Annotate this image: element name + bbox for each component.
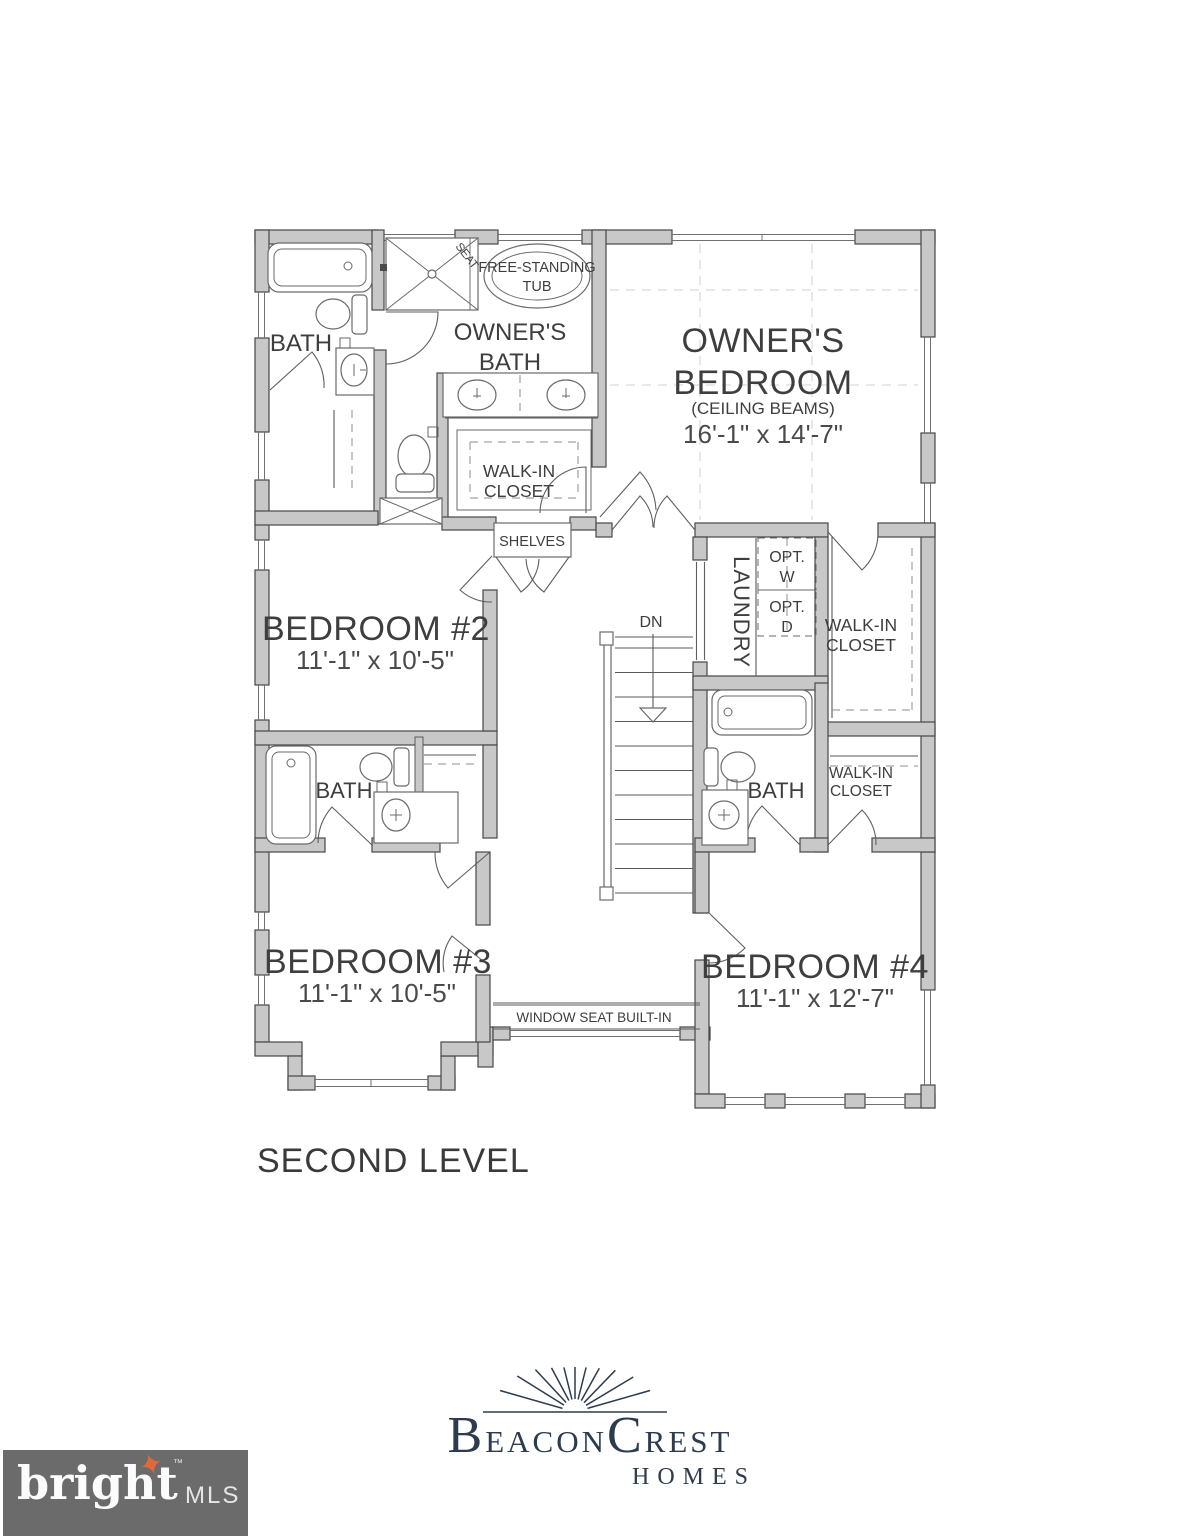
floor-plan-page: BATH SEAT FREE-STANDING TUB OWNER'S BATH… xyxy=(0,0,1187,1536)
builder-logo: BEACONCREST HOMES xyxy=(418,1366,762,1491)
tub-top-left-bath xyxy=(268,243,372,292)
bedroom2-closet-lines xyxy=(334,410,352,488)
builder-beacon-rest: EACON xyxy=(485,1424,607,1459)
double-vanity-owners-bath xyxy=(443,373,598,417)
label-owners-closet-1: WALK-IN xyxy=(483,461,555,481)
toilet-owners-compartment xyxy=(396,427,438,492)
label-laundry: LAUNDRY xyxy=(729,556,754,668)
label-bedroom4-closet-1: WALK-IN xyxy=(829,765,893,782)
freestanding-tub xyxy=(484,244,590,308)
label-bedroom3: BEDROOM #3 xyxy=(264,943,492,981)
cased-opening xyxy=(697,562,705,660)
hall-linen-shelving xyxy=(424,755,476,764)
door-arc xyxy=(496,557,539,592)
door-arc xyxy=(270,352,324,390)
door-arc xyxy=(654,496,695,530)
builder-initial-b: B xyxy=(448,1407,486,1464)
label-opt-w-1: OPT. xyxy=(769,549,805,566)
label-hall-closet-1: WALK-IN xyxy=(825,615,897,635)
builder-initial-c: C xyxy=(607,1407,645,1464)
label-hall-closet-2: CLOSET xyxy=(826,635,896,655)
builder-wordmark: BEACONCREST xyxy=(418,1410,762,1462)
mls-suffix: MLS xyxy=(185,1482,240,1510)
level-title: SECOND LEVEL xyxy=(257,1142,530,1181)
label-owners-bath-2: BATH xyxy=(479,349,541,376)
linen-closet xyxy=(380,498,442,524)
label-ceiling-beams: (CEILING BEAMS) xyxy=(691,399,835,418)
label-bedroom4-dims: 11'-1" x 12'-7" xyxy=(736,983,894,1013)
tp-holder xyxy=(377,782,387,792)
sink-left-bath xyxy=(374,792,458,843)
door-arc xyxy=(612,496,653,530)
label-bedroom2-dims: 11'-1" x 10'-5" xyxy=(296,645,454,675)
label-bedroom4: BEDROOM #4 xyxy=(701,948,929,986)
label-shelves: SHELVES xyxy=(499,534,565,550)
label-bath-left: BATH xyxy=(315,778,372,803)
label-freestanding-tub-1: FREE-STANDING xyxy=(478,260,595,276)
shower-head xyxy=(380,264,387,271)
floor-plan-drawing: BATH SEAT FREE-STANDING TUB OWNER'S BATH… xyxy=(0,0,1187,1230)
label-stairs-dn: DN xyxy=(639,614,662,631)
label-freestanding-tub-2: TUB xyxy=(523,279,552,295)
stair-newel xyxy=(600,632,613,645)
door-arc xyxy=(386,312,438,364)
label-bedroom4-closet-2: CLOSET xyxy=(830,783,893,800)
label-owners-closet-2: CLOSET xyxy=(484,481,554,501)
staircase xyxy=(600,632,693,900)
sink-right-bath xyxy=(702,790,748,845)
sink-top-left-bath xyxy=(336,348,374,395)
stair-newel xyxy=(600,887,613,900)
stair-arrow-down xyxy=(640,708,666,722)
label-owners-bedroom-dims: 16'-1" x 14'-7" xyxy=(683,419,843,449)
mls-watermark-bar: bright ✦ ™ MLS xyxy=(3,1450,248,1536)
mls-trademark: ™ xyxy=(173,1458,183,1469)
tub-right-bath xyxy=(712,690,812,735)
label-opt-d-2: D xyxy=(781,619,793,636)
label-window-seat: WINDOW SEAT BUILT-IN xyxy=(516,1010,671,1025)
label-bedroom2: BEDROOM #2 xyxy=(262,610,490,648)
label-opt-w-2: W xyxy=(779,569,795,586)
label-bath-right: BATH xyxy=(747,778,804,803)
door-arc xyxy=(828,810,876,845)
door-arc xyxy=(526,557,569,592)
label-owners-bedroom-2: BEDROOM xyxy=(673,364,852,402)
label-bedroom3-dims: 11'-1" x 10'-5" xyxy=(298,978,456,1008)
tub-left-bath xyxy=(266,746,316,844)
label-owners-bedroom-1: OWNER'S xyxy=(682,322,845,360)
door-arc xyxy=(318,807,372,845)
label-owners-bath-1: OWNER'S xyxy=(454,319,567,346)
door-arc xyxy=(828,532,878,570)
tp-holder xyxy=(340,338,350,348)
label-opt-d-1: OPT. xyxy=(769,599,805,616)
label-bath-top-left: BATH xyxy=(270,330,332,357)
builder-homes-label: HOMES xyxy=(418,1464,762,1491)
builder-crest-rest: REST xyxy=(645,1424,733,1459)
